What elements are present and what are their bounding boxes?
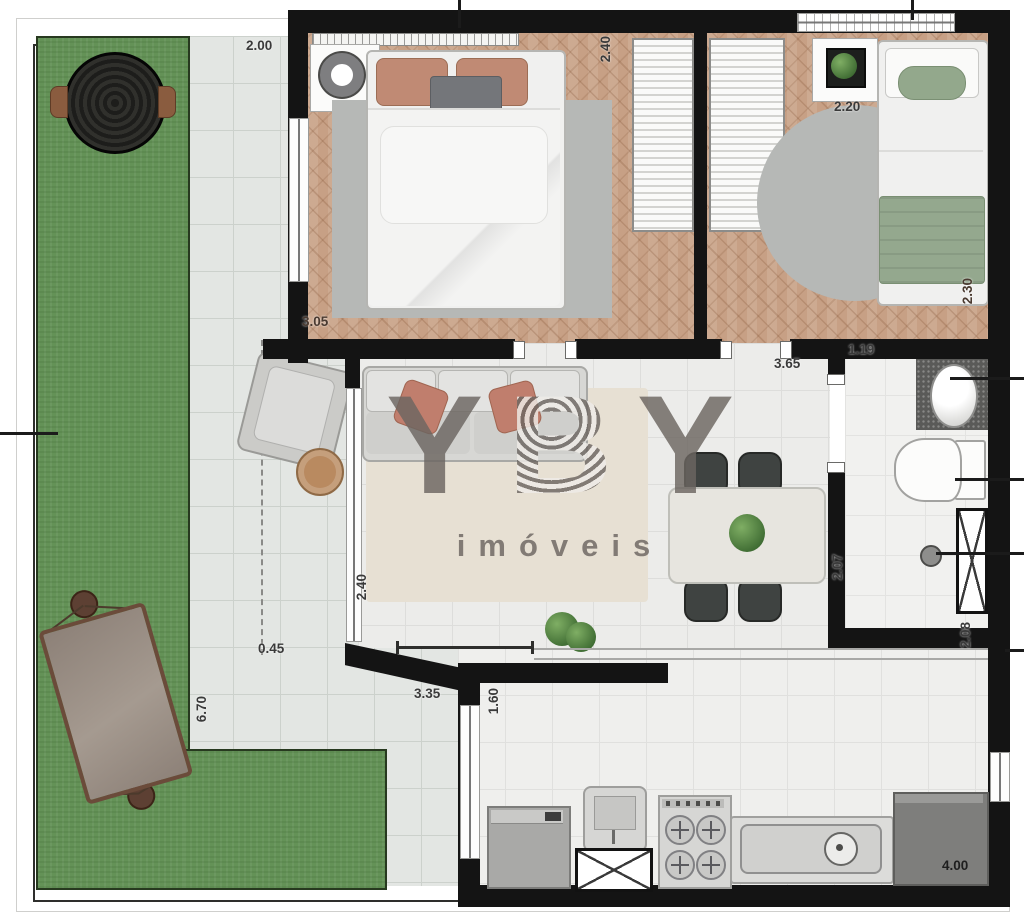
dim-bath-hall: 1.19 — [848, 342, 874, 357]
sliding-door-track — [398, 646, 534, 649]
leader-corner — [1005, 649, 1024, 652]
wall-corridor — [575, 339, 722, 359]
dim-bedroom2-width: 2.20 — [834, 99, 860, 114]
dim-kitchen-door: 1.60 — [486, 688, 501, 714]
armchair-cushion — [252, 365, 336, 455]
bathroom-door-jamb — [827, 374, 845, 385]
bed2-sheet-line — [879, 150, 983, 152]
burner-icon — [696, 815, 726, 845]
sink-basin — [740, 824, 882, 874]
fridge-counter — [893, 792, 989, 886]
dim-bedroom1-width: 3.05 — [302, 314, 328, 329]
bed1-pillow-fold — [380, 126, 548, 224]
axis-tick-top — [458, 0, 461, 28]
washer-display — [545, 812, 561, 821]
counter-edge-line — [534, 648, 988, 650]
sliding-door-cap — [396, 641, 399, 654]
garden-chair-left — [50, 86, 68, 118]
wall-corridor — [790, 339, 1010, 359]
living-window-stub — [345, 359, 360, 388]
toilet-bowl — [894, 438, 962, 502]
kitchen-shaft — [575, 848, 653, 892]
burner-icon — [665, 815, 695, 845]
bedroom1-wardrobe — [632, 38, 694, 232]
garden-chair-right — [158, 86, 176, 118]
faucet-dot — [836, 844, 843, 851]
burner-icon — [696, 850, 726, 880]
table-centerpiece-plant — [729, 514, 765, 552]
dim-living-depth: 2.40 — [354, 574, 369, 600]
terrace-frame-left — [33, 44, 35, 902]
cabinet-door — [594, 796, 636, 830]
garden-round-table — [64, 52, 166, 154]
wall-kitchen-divider — [458, 663, 668, 683]
wall-cabinet — [583, 786, 647, 852]
wall-corridor — [263, 339, 515, 359]
dim-kitchen-width: 4.00 — [942, 858, 968, 873]
dim-bedroom1-depth: 2.40 — [598, 36, 613, 62]
floor-plan: 2.00 2.40 3.05 2.20 2.30 3.65 1.19 2.07 … — [0, 0, 1024, 922]
leader-left — [0, 432, 58, 435]
plant-icon — [831, 53, 857, 79]
wall-bathroom-left — [828, 468, 845, 630]
counter-edge-line — [534, 658, 988, 660]
stove — [658, 795, 732, 889]
dim-terrace-notch: 0.45 — [258, 641, 284, 656]
bedroom2-door-jamb — [720, 341, 732, 359]
cabinet-handle — [612, 830, 615, 844]
shower-head-icon — [920, 545, 942, 567]
dim-living-width: 3.65 — [774, 356, 800, 371]
dim-shaft-side: 2.08 — [958, 622, 973, 648]
living-terrace-window — [346, 388, 362, 642]
bed2-roll-pillow — [898, 66, 966, 100]
dining-chair — [738, 578, 782, 622]
stove-control-strip — [662, 799, 724, 808]
terrace-side-table — [296, 448, 344, 496]
leader-sink — [950, 377, 1024, 380]
dim-bath-depth: 2.07 — [830, 554, 845, 580]
leader-toilet — [955, 478, 1024, 481]
kitchen-side-window — [990, 752, 1010, 802]
terrace-frame-bottom — [33, 900, 463, 902]
leader-shower — [936, 552, 1024, 555]
wall-right-exterior — [988, 10, 1010, 630]
bedroom1-side-window — [289, 118, 309, 282]
burner-icon — [665, 850, 695, 880]
wall-bathroom-bottom — [828, 628, 1010, 650]
dim-balcony-door: 3.35 — [414, 686, 440, 701]
axis-tick-top — [911, 0, 914, 20]
sink-counter — [730, 816, 894, 884]
round-mirror-icon — [320, 53, 364, 97]
bedroom1-door-jamb — [513, 341, 525, 359]
dim-bedroom2-depth: 2.30 — [960, 278, 975, 304]
wall-bedrooms-divider — [694, 33, 707, 343]
bathroom-door-jamb — [827, 462, 845, 473]
washing-machine — [487, 806, 571, 889]
dim-terrace-width: 2.00 — [246, 38, 272, 53]
bathroom-sink — [930, 364, 978, 428]
bed2-blanket — [879, 196, 985, 284]
kitchen-terrace-door — [460, 705, 480, 859]
dim-garden-depth: 6.70 — [194, 696, 209, 722]
dining-chair — [684, 578, 728, 622]
fridge-top-band — [895, 794, 983, 803]
bedroom1-door-jamb — [565, 341, 577, 359]
garden-grass-bottom — [184, 749, 387, 890]
bedroom2-top-window — [797, 13, 955, 32]
bathroom-shaft-window — [956, 508, 988, 614]
